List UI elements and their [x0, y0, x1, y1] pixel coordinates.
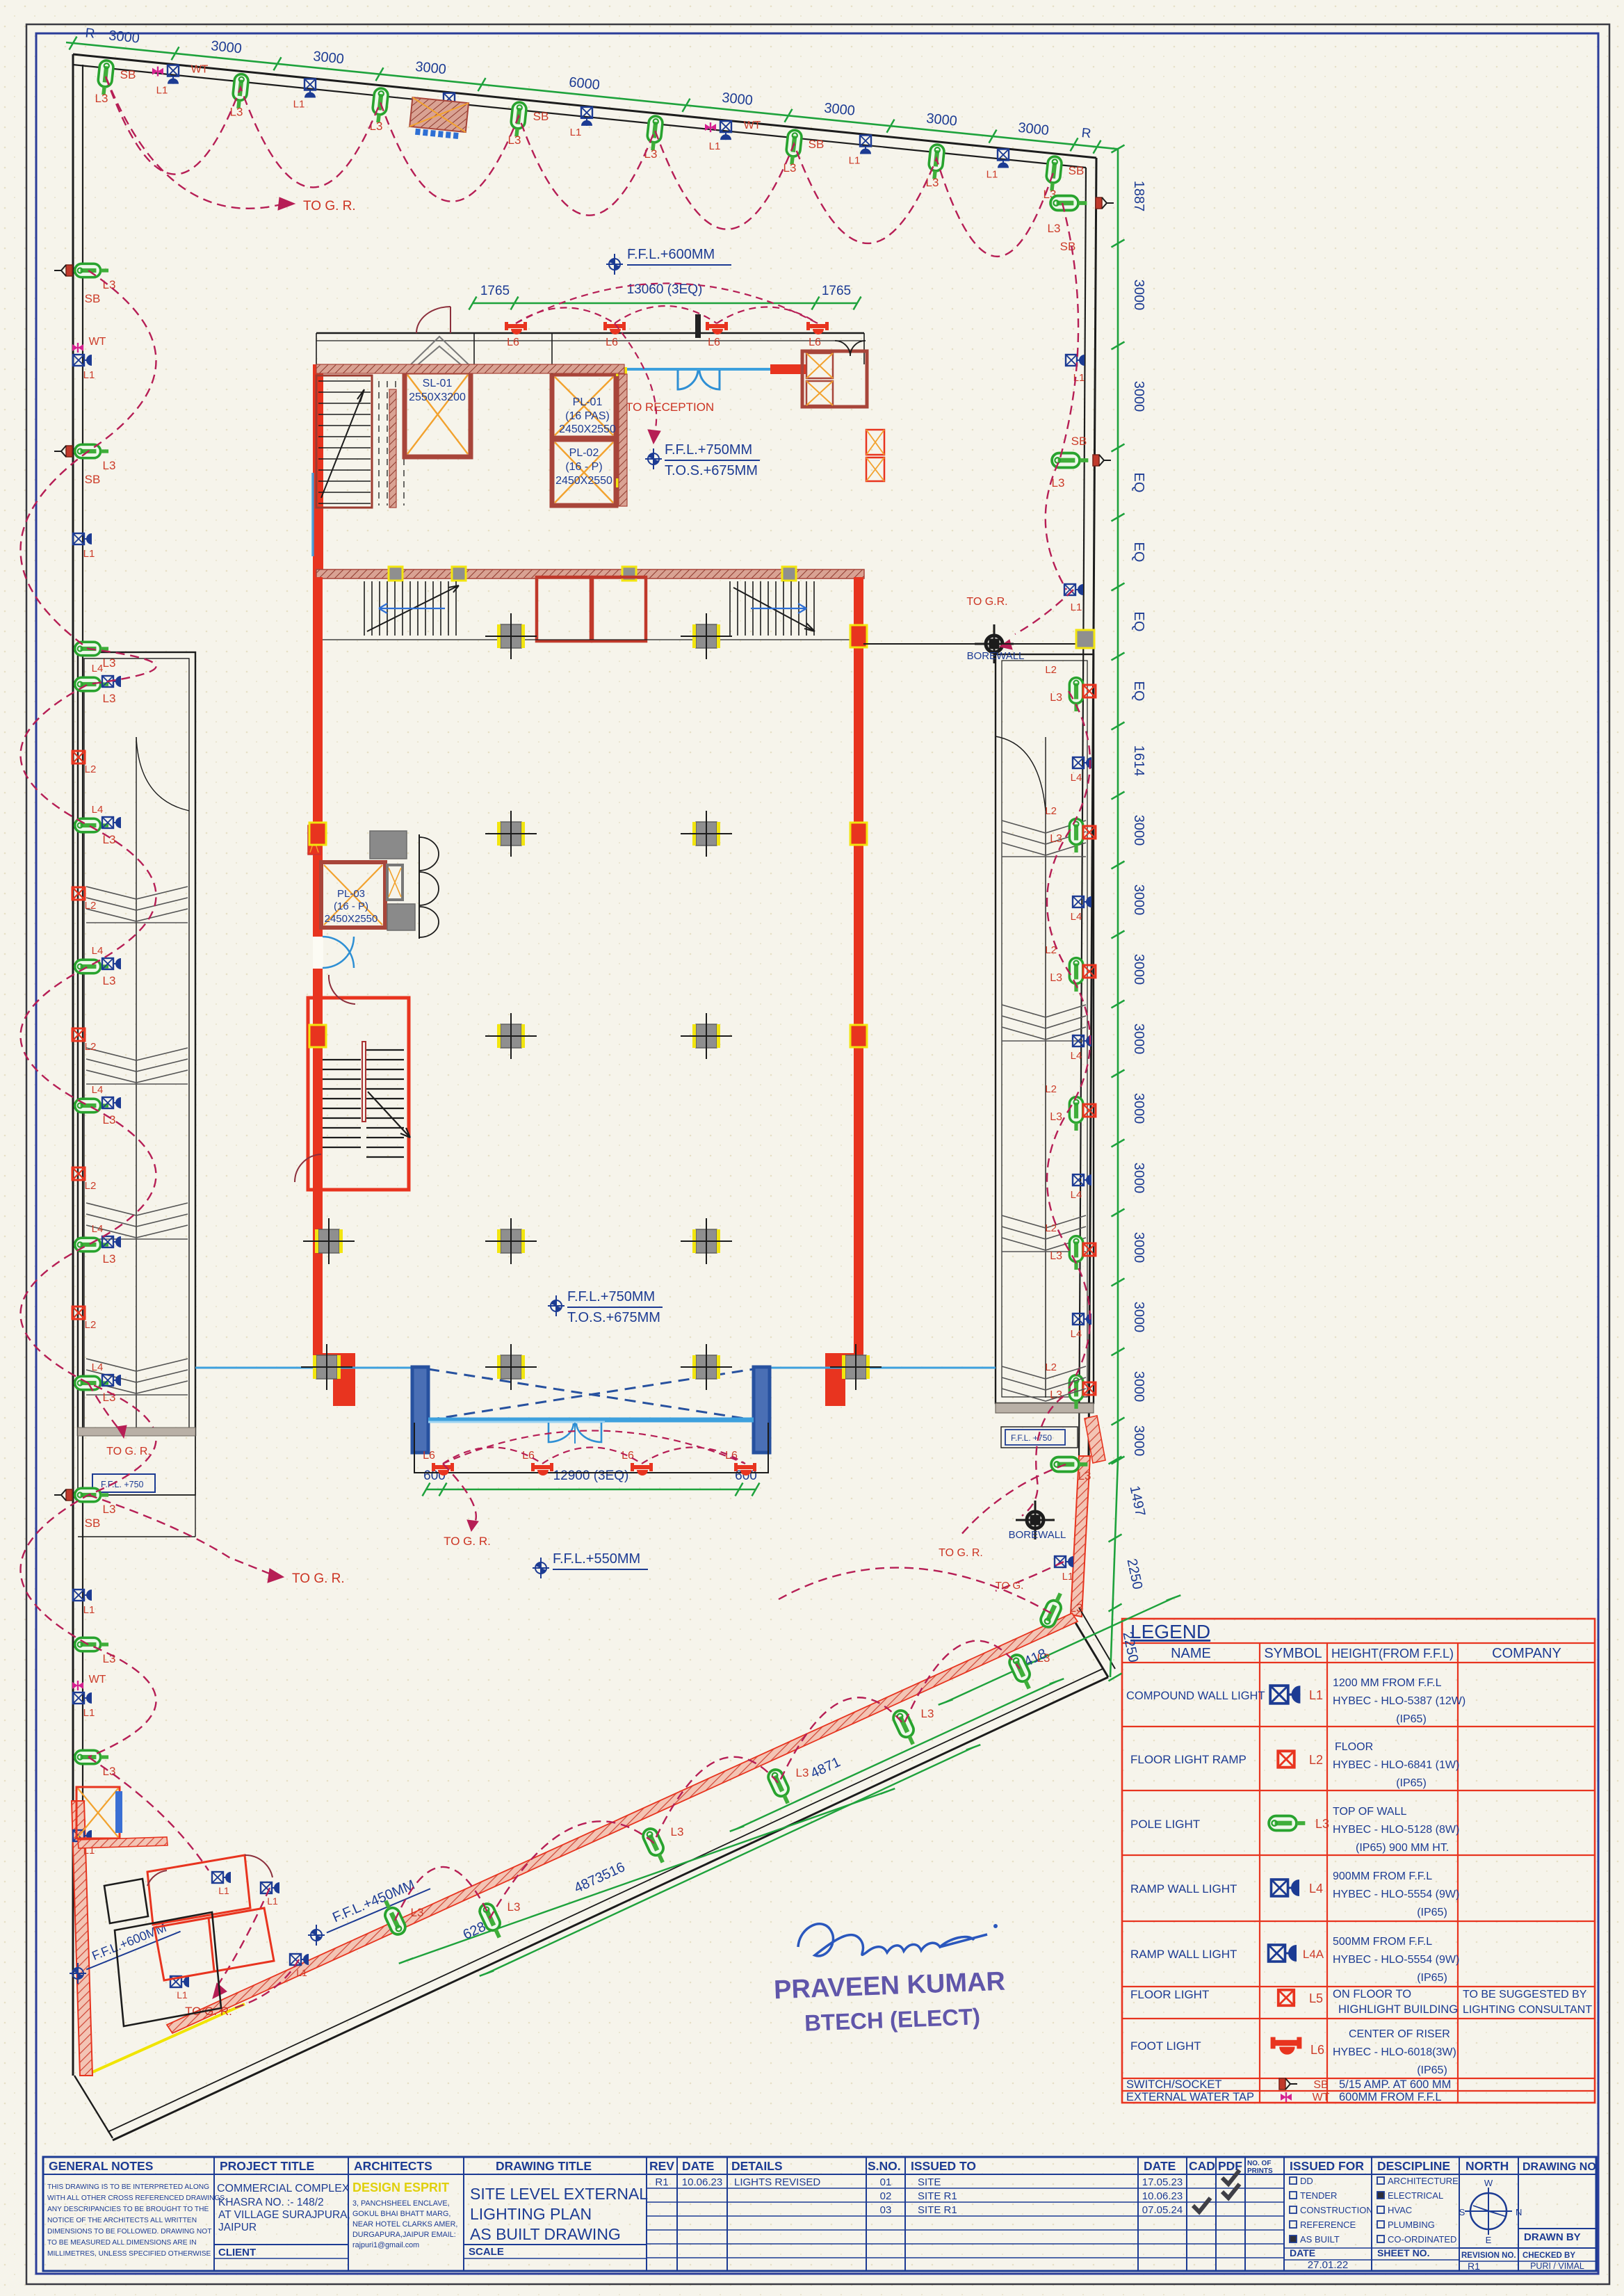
svg-text:COMPOUND WALL LIGHT: COMPOUND WALL LIGHT — [1126, 1690, 1265, 1702]
svg-text:PURI / VIMAL: PURI / VIMAL — [1530, 2261, 1584, 2271]
svg-text:TO G. R.: TO G. R. — [444, 1535, 491, 1548]
svg-text:SB: SB — [85, 292, 101, 305]
svg-text:10.06.23: 10.06.23 — [682, 2176, 722, 2188]
svg-text:L2: L2 — [1045, 664, 1057, 676]
svg-text:L3: L3 — [1050, 833, 1062, 845]
svg-text:COMMERCIAL COMPLEX: COMMERCIAL COMPLEX — [217, 2183, 350, 2194]
svg-text:BOREWALL: BOREWALL — [967, 650, 1025, 662]
svg-text:L1: L1 — [156, 85, 168, 97]
svg-text:L1: L1 — [570, 127, 582, 138]
svg-text:SITE LEVEL EXTERNAL: SITE LEVEL EXTERNAL — [470, 2185, 648, 2203]
svg-text:TO RECEPTION: TO RECEPTION — [626, 401, 714, 414]
svg-text:R1: R1 — [655, 2176, 668, 2188]
svg-text:FLOOR LIGHT RAMP: FLOOR LIGHT RAMP — [1130, 1753, 1247, 1766]
svg-text:HYBEC - HLO-6018(3W): HYBEC - HLO-6018(3W) — [1333, 2046, 1456, 2058]
svg-text:TO BE SUGGESTED BY: TO BE SUGGESTED BY — [1463, 1989, 1587, 2000]
svg-text:F.F.L. +750: F.F.L. +750 — [101, 1480, 144, 1489]
svg-text:SL-01: SL-01 — [423, 378, 453, 389]
svg-text:L3: L3 — [921, 1707, 934, 1720]
svg-text:3000: 3000 — [1131, 1425, 1146, 1457]
svg-text:ISSUED TO: ISSUED TO — [911, 2159, 976, 2173]
svg-text:F.F.L.+600MM: F.F.L.+600MM — [627, 247, 715, 262]
svg-text:L2: L2 — [1309, 1753, 1323, 1767]
svg-text:RAMP WALL LIGHT: RAMP WALL LIGHT — [1130, 1882, 1237, 1895]
svg-text:SWITCH/SOCKET: SWITCH/SOCKET — [1126, 2078, 1222, 2091]
svg-text:CO-ORDINATED: CO-ORDINATED — [1388, 2234, 1456, 2245]
svg-text:L1: L1 — [296, 1967, 307, 1978]
svg-text:DURGAPURA,JAIPUR EMAIL:: DURGAPURA,JAIPUR EMAIL: — [352, 2231, 456, 2239]
svg-text:L2: L2 — [85, 1319, 97, 1331]
svg-text:FLOOR: FLOOR — [1335, 1741, 1373, 1753]
svg-text:L6: L6 — [809, 337, 821, 348]
svg-text:3000: 3000 — [414, 59, 446, 77]
svg-text:L3: L3 — [1070, 1601, 1083, 1615]
svg-text:1765: 1765 — [822, 284, 851, 298]
svg-text:DATE: DATE — [1290, 2247, 1315, 2258]
svg-text:CAD: CAD — [1189, 2159, 1215, 2173]
svg-text:3000: 3000 — [312, 49, 344, 67]
svg-text:(IP65): (IP65) — [1396, 1713, 1427, 1725]
svg-text:DETAILS: DETAILS — [731, 2159, 783, 2173]
svg-text:THIS DRAWING IS TO BE INTERPRE: THIS DRAWING IS TO BE INTERPRETED ALONG — [47, 2183, 209, 2191]
svg-text:T.O.S.+675MM: T.O.S.+675MM — [567, 1310, 660, 1325]
svg-text:3000: 3000 — [1131, 1093, 1146, 1124]
svg-text:HYBEC - HLO-5554 (9W): HYBEC - HLO-5554 (9W) — [1333, 1954, 1459, 1966]
svg-text:L1: L1 — [1062, 1571, 1074, 1583]
svg-text:AS BUILT: AS BUILT — [1300, 2234, 1340, 2245]
svg-text:PL-02: PL-02 — [569, 447, 599, 459]
svg-text:LIGHTS REVISED: LIGHTS REVISED — [734, 2176, 820, 2188]
svg-text:REV: REV — [649, 2159, 674, 2173]
svg-text:L6: L6 — [708, 337, 720, 348]
svg-text:SB: SB — [533, 110, 549, 123]
svg-text:COMPANY: COMPANY — [1492, 1646, 1561, 1661]
svg-text:SB: SB — [1060, 240, 1076, 253]
svg-text:L1: L1 — [709, 140, 721, 152]
svg-text:3000: 3000 — [1131, 1024, 1146, 1055]
svg-text:L3: L3 — [1052, 476, 1065, 490]
svg-text:POLE LIGHT: POLE LIGHT — [1130, 1818, 1200, 1831]
svg-text:L3: L3 — [796, 1766, 809, 1779]
svg-text:L5: L5 — [1309, 1991, 1323, 2005]
svg-text:L6: L6 — [522, 1450, 535, 1462]
svg-text:AS BUILT DRAWING: AS BUILT DRAWING — [470, 2225, 621, 2243]
svg-text:ARCHITECTURE: ARCHITECTURE — [1388, 2176, 1459, 2186]
svg-text:WT: WT — [89, 1674, 106, 1685]
svg-text:L6: L6 — [606, 337, 618, 348]
svg-text:2450X2550: 2450X2550 — [325, 913, 378, 925]
svg-text:HYBEC - HLO-6841 (1W): HYBEC - HLO-6841 (1W) — [1333, 1759, 1459, 1771]
svg-text:S: S — [1459, 2207, 1465, 2217]
svg-text:3000: 3000 — [1131, 1232, 1146, 1263]
svg-text:5/15 AMP. AT 600 MM: 5/15 AMP. AT 600 MM — [1339, 2078, 1451, 2091]
svg-text:3000: 3000 — [1131, 884, 1146, 916]
svg-text:L4: L4 — [1071, 911, 1082, 923]
svg-text:N: N — [1516, 2207, 1522, 2217]
svg-text:SITE R1: SITE R1 — [918, 2190, 957, 2202]
svg-text:SB: SB — [120, 68, 136, 81]
svg-text:NAME: NAME — [1171, 1646, 1211, 1661]
svg-text:LIGHTING CONSULTANT: LIGHTING CONSULTANT — [1463, 2004, 1592, 2016]
svg-text:BOREWALL: BOREWALL — [1009, 1529, 1066, 1541]
svg-text:L4: L4 — [92, 663, 104, 674]
svg-text:L4: L4 — [92, 1223, 104, 1235]
svg-text:L2: L2 — [85, 900, 97, 912]
svg-text:(IP65): (IP65) — [1417, 2064, 1447, 2076]
svg-text:(IP65): (IP65) — [1417, 1972, 1447, 1984]
svg-text:L6: L6 — [622, 1450, 634, 1462]
svg-text:ON FLOOR TO: ON FLOOR TO — [1333, 1988, 1411, 2000]
svg-text:L4: L4 — [1071, 1050, 1082, 1062]
svg-text:3000: 3000 — [1131, 954, 1146, 985]
svg-text:EQ: EQ — [1131, 473, 1146, 493]
svg-text:L3: L3 — [103, 656, 116, 670]
svg-text:EQ: EQ — [1131, 681, 1146, 702]
svg-text:TOP OF WALL: TOP OF WALL — [1333, 1806, 1407, 1818]
svg-text:L4: L4 — [1071, 1328, 1082, 1340]
svg-text:R1: R1 — [1468, 2261, 1480, 2272]
svg-text:(IP65): (IP65) — [1396, 1777, 1427, 1789]
svg-text:EQ: EQ — [1131, 542, 1146, 563]
svg-text:CONSTRUCTION: CONSTRUCTION — [1300, 2205, 1373, 2215]
svg-text:L1: L1 — [1309, 1688, 1323, 1702]
svg-text:3000: 3000 — [1017, 120, 1049, 138]
svg-text:L2: L2 — [1045, 805, 1057, 817]
svg-text:(16 PAS): (16 PAS) — [565, 410, 610, 422]
svg-text:PLUMBING: PLUMBING — [1388, 2220, 1435, 2230]
svg-text:L3: L3 — [1050, 1111, 1062, 1123]
svg-text:WT: WT — [1313, 2092, 1330, 2103]
svg-text:SYMBOL: SYMBOL — [1264, 1646, 1322, 1661]
svg-text:L1: L1 — [849, 155, 861, 167]
svg-text:L1: L1 — [83, 1707, 95, 1719]
svg-text:L3: L3 — [644, 147, 658, 161]
svg-text:T.O.S.+675MM: T.O.S.+675MM — [665, 463, 758, 478]
svg-text:TO G. R.: TO G. R. — [303, 199, 356, 213]
svg-text:L3: L3 — [507, 1900, 521, 1914]
svg-text:WITH ALL OTHER CROSS REFERENCE: WITH ALL OTHER CROSS REFERENCED DRAWINGS… — [47, 2194, 227, 2202]
svg-text:L1: L1 — [267, 1895, 278, 1907]
svg-text:FOOT LIGHT: FOOT LIGHT — [1130, 2039, 1201, 2053]
svg-text:SITE: SITE — [918, 2176, 941, 2188]
svg-text:L3: L3 — [1050, 692, 1062, 704]
svg-text:L1: L1 — [83, 548, 95, 560]
svg-text:L3: L3 — [103, 974, 116, 987]
svg-text:3000: 3000 — [1131, 1163, 1146, 1194]
svg-text:3000: 3000 — [1131, 1371, 1146, 1402]
svg-text:DIMENSIONS TO BE FOLLOWED. DR: DIMENSIONS TO BE FOLLOWED. DRAWING NOT — [47, 2228, 211, 2236]
svg-text:PRINTS: PRINTS — [1247, 2167, 1273, 2175]
svg-text:2450X2550: 2450X2550 — [559, 423, 616, 435]
svg-text:L3: L3 — [103, 1503, 116, 1516]
svg-text:(16 - P): (16 - P) — [565, 461, 602, 473]
svg-text:3000: 3000 — [721, 90, 753, 108]
svg-text:W: W — [1484, 2178, 1493, 2188]
svg-text:07.05.24: 07.05.24 — [1142, 2204, 1183, 2216]
svg-text:SCALE: SCALE — [469, 2246, 504, 2258]
svg-text:L3: L3 — [103, 1765, 116, 1778]
svg-text:DD: DD — [1300, 2176, 1313, 2186]
svg-text:(IP65): (IP65) — [1417, 1907, 1447, 1918]
svg-text:L4: L4 — [1071, 1189, 1082, 1201]
svg-text:1765: 1765 — [480, 284, 510, 298]
svg-text:HYBEC - HLO-5387 (12W): HYBEC - HLO-5387 (12W) — [1333, 1695, 1465, 1707]
svg-text:NOTICE OF THE ARCHITECTS ALL: NOTICE OF THE ARCHITECTS ALL WRITTEN — [47, 2217, 197, 2224]
svg-text:HVAC: HVAC — [1388, 2205, 1412, 2215]
svg-text:TO BE MEASURED ALL DIMENSIONS: TO BE MEASURED ALL DIMENSIONS ARE IN — [47, 2239, 197, 2247]
svg-text:L3: L3 — [1315, 1817, 1329, 1831]
svg-text:LEGEND: LEGEND — [1130, 1621, 1210, 1642]
svg-text:2550X3200: 2550X3200 — [409, 391, 466, 403]
svg-text:GENERAL NOTES: GENERAL NOTES — [49, 2159, 153, 2173]
svg-text:02: 02 — [880, 2190, 892, 2202]
svg-text:WT: WT — [744, 120, 761, 131]
svg-text:FLOOR LIGHT: FLOOR LIGHT — [1130, 1988, 1209, 2001]
svg-text:R: R — [85, 26, 96, 41]
svg-text:DATE: DATE — [1144, 2159, 1176, 2173]
svg-text:L3: L3 — [1048, 222, 1061, 235]
svg-text:GOKUL BHAI BHATT MARG,: GOKUL BHAI BHATT MARG, — [352, 2210, 450, 2218]
svg-text:L3: L3 — [926, 176, 939, 189]
svg-text:L3: L3 — [95, 92, 108, 105]
svg-text:EXTERNAL WATER TAP: EXTERNAL WATER TAP — [1126, 2091, 1254, 2103]
svg-text:REVISION NO.: REVISION NO. — [1461, 2251, 1516, 2260]
svg-text:AT VILLAGE SURAJPURA,: AT VILLAGE SURAJPURA, — [218, 2209, 350, 2221]
svg-text:R: R — [1081, 126, 1092, 141]
svg-text:L2: L2 — [85, 763, 97, 775]
svg-text:01: 01 — [880, 2176, 892, 2188]
svg-text:SITE R1: SITE R1 — [918, 2204, 957, 2216]
svg-text:SB: SB — [1069, 164, 1085, 177]
svg-text:SB: SB — [85, 473, 101, 486]
svg-text:17.05.23: 17.05.23 — [1142, 2176, 1183, 2188]
svg-text:L3: L3 — [411, 1906, 424, 1919]
svg-text:3000: 3000 — [210, 38, 242, 56]
svg-text:L6: L6 — [1310, 2043, 1324, 2057]
svg-text:27.01.22: 27.01.22 — [1308, 2259, 1348, 2271]
svg-text:TO G.: TO G. — [996, 1580, 1024, 1592]
svg-text:1887: 1887 — [1131, 181, 1146, 212]
svg-text:3000: 3000 — [1131, 280, 1146, 311]
svg-text:CENTER OF RISER: CENTER OF RISER — [1349, 2028, 1450, 2040]
svg-text:900MM FROM F.F.L: 900MM FROM F.F.L — [1333, 1870, 1432, 1882]
svg-text:L2: L2 — [1045, 1083, 1057, 1095]
svg-text:PL-01: PL-01 — [573, 396, 603, 408]
svg-text:L4: L4 — [1309, 1882, 1323, 1895]
svg-text:SB: SB — [1071, 435, 1087, 448]
svg-text:3000: 3000 — [823, 100, 855, 118]
svg-text:KHASRA NO. :- 148/2: KHASRA NO. :- 148/2 — [218, 2197, 324, 2208]
svg-text:TO G.R.: TO G.R. — [966, 596, 1007, 608]
svg-text:rajpuri1@gmail.com: rajpuri1@gmail.com — [352, 2241, 419, 2249]
svg-text:HYBEC - HLO-5554 (9W): HYBEC - HLO-5554 (9W) — [1333, 1889, 1459, 1900]
svg-text:SHEET NO.: SHEET NO. — [1377, 2247, 1429, 2258]
svg-text:L1: L1 — [83, 1604, 95, 1616]
svg-text:L3: L3 — [1037, 1651, 1050, 1665]
svg-text:NEAR HOTEL CLARKS AMER,: NEAR HOTEL CLARKS AMER, — [352, 2220, 457, 2229]
svg-text:L4: L4 — [92, 804, 104, 816]
svg-text:RAMP WALL LIGHT: RAMP WALL LIGHT — [1130, 1948, 1237, 1961]
svg-text:3000: 3000 — [108, 28, 140, 46]
svg-text:TO G. R.: TO G. R. — [292, 1571, 345, 1586]
svg-text:TO G. R.: TO G. R. — [939, 1547, 983, 1559]
svg-text:L1: L1 — [177, 1989, 188, 2000]
svg-text:(IP65) 900 MM HT.: (IP65) 900 MM HT. — [1356, 1842, 1449, 1854]
svg-text:2450X2550: 2450X2550 — [555, 475, 612, 487]
svg-text:6000: 6000 — [568, 74, 600, 92]
svg-text:500MM FROM F.F.L: 500MM FROM F.F.L — [1333, 1936, 1432, 1948]
svg-text:3000: 3000 — [1131, 1302, 1146, 1333]
svg-text:SB: SB — [809, 138, 825, 151]
svg-text:3000: 3000 — [925, 111, 957, 129]
svg-text:DESCIPLINE: DESCIPLINE — [1377, 2159, 1450, 2173]
svg-text:1614: 1614 — [1131, 745, 1146, 777]
svg-text:L3: L3 — [1050, 1250, 1062, 1262]
svg-text:12900 (3EQ): 12900 (3EQ) — [553, 1469, 629, 1483]
svg-text:LIGHTING PLAN: LIGHTING PLAN — [470, 2205, 592, 2223]
svg-text:L3: L3 — [103, 1252, 116, 1266]
svg-text:L3: L3 — [103, 692, 116, 705]
svg-text:ANY DESCRIPANCIES TO BE BROUG: ANY DESCRIPANCIES TO BE BROUGHT TO THE — [47, 2206, 209, 2213]
svg-text:(16 - P): (16 - P) — [334, 900, 368, 912]
svg-text:DATE: DATE — [682, 2159, 714, 2173]
svg-text:3000: 3000 — [1131, 815, 1146, 846]
svg-text:NO. OF: NO. OF — [1247, 2160, 1271, 2167]
svg-text:L4: L4 — [1071, 772, 1082, 784]
svg-text:TENDER: TENDER — [1300, 2190, 1337, 2201]
svg-text:L3: L3 — [230, 105, 243, 118]
svg-text:L6: L6 — [507, 337, 519, 348]
svg-text:S.NO.: S.NO. — [868, 2159, 901, 2173]
svg-text:F.F.L.+750MM: F.F.L.+750MM — [567, 1289, 655, 1304]
svg-text:SB: SB — [1313, 2079, 1328, 2091]
svg-text:L4: L4 — [92, 1084, 104, 1096]
svg-text:CHECKED BY: CHECKED BY — [1522, 2251, 1575, 2260]
svg-text:ELECTRICAL: ELECTRICAL — [1388, 2190, 1443, 2201]
svg-text:L1: L1 — [83, 369, 95, 381]
svg-text:EQ: EQ — [1131, 612, 1146, 632]
svg-text:DESIGN ESPRIT: DESIGN ESPRIT — [352, 2181, 449, 2194]
svg-text:10.06.23: 10.06.23 — [1142, 2190, 1183, 2202]
svg-text:F.F.L. +750: F.F.L. +750 — [1011, 1433, 1052, 1443]
svg-text:L1: L1 — [218, 1885, 229, 1896]
svg-text:L1: L1 — [1071, 601, 1082, 613]
svg-text:REFERENCE: REFERENCE — [1300, 2220, 1356, 2230]
svg-text:NORTH: NORTH — [1465, 2159, 1509, 2173]
svg-text:L4: L4 — [92, 945, 104, 957]
svg-text:03: 03 — [880, 2204, 892, 2216]
svg-text:HYBEC - HLO-5128 (8W): HYBEC - HLO-5128 (8W) — [1333, 1824, 1459, 1836]
svg-text:L1: L1 — [293, 99, 305, 111]
svg-text:WT: WT — [191, 64, 209, 76]
svg-text:PROJECT TITLE: PROJECT TITLE — [220, 2159, 314, 2173]
svg-text:L2: L2 — [1045, 1361, 1057, 1373]
svg-text:MILLIMETRES, UNLESS SPECIFIED: MILLIMETRES, UNLESS SPECIFIED OTHERWISE — [47, 2250, 211, 2258]
svg-text:L3: L3 — [671, 1825, 684, 1838]
svg-text:DRAWING TITLE: DRAWING TITLE — [496, 2159, 592, 2173]
svg-text:HIGHLIGHT BUILDING: HIGHLIGHT BUILDING — [1338, 2003, 1458, 2016]
svg-text:TO G. R.: TO G. R. — [106, 1446, 151, 1457]
svg-text:PL-03: PL-03 — [337, 888, 365, 900]
svg-text:3, PANCHSHEEL ENCLAVE,: 3, PANCHSHEEL ENCLAVE, — [352, 2199, 450, 2208]
svg-text:L1: L1 — [986, 169, 998, 181]
svg-text:600MM FROM F.F.L: 600MM FROM F.F.L — [1339, 2091, 1442, 2103]
svg-text:L2: L2 — [85, 1180, 97, 1192]
svg-text:L4: L4 — [92, 1361, 104, 1373]
svg-text:L4A: L4A — [1303, 1948, 1324, 1961]
svg-text:DRAWN BY: DRAWN BY — [1524, 2231, 1581, 2243]
svg-text:JAIPUR: JAIPUR — [218, 2222, 257, 2233]
svg-text:L6: L6 — [423, 1450, 435, 1462]
svg-text:L3: L3 — [1078, 1469, 1091, 1482]
svg-text:SB: SB — [85, 1517, 101, 1530]
svg-text:L3: L3 — [1050, 972, 1062, 984]
svg-text:ISSUED FOR: ISSUED FOR — [1290, 2159, 1364, 2173]
svg-text:DRAWING NO.: DRAWING NO. — [1522, 2161, 1599, 2173]
svg-text:CLIENT: CLIENT — [218, 2247, 256, 2258]
svg-text:L3: L3 — [103, 459, 116, 472]
svg-text:L2: L2 — [85, 1041, 97, 1053]
svg-text:F.F.L.+550MM: F.F.L.+550MM — [553, 1551, 640, 1567]
svg-text:ARCHITECTS: ARCHITECTS — [354, 2159, 432, 2173]
svg-text:3000: 3000 — [1131, 381, 1146, 412]
svg-text:E: E — [1486, 2235, 1492, 2245]
svg-text:F.F.L.+750MM: F.F.L.+750MM — [665, 442, 752, 458]
svg-text:HEIGHT(FROM F.F.L): HEIGHT(FROM F.F.L) — [1331, 1647, 1454, 1660]
svg-text:1200 MM FROM F.F.L: 1200 MM FROM F.F.L — [1333, 1677, 1442, 1689]
svg-text:WT: WT — [89, 336, 106, 348]
